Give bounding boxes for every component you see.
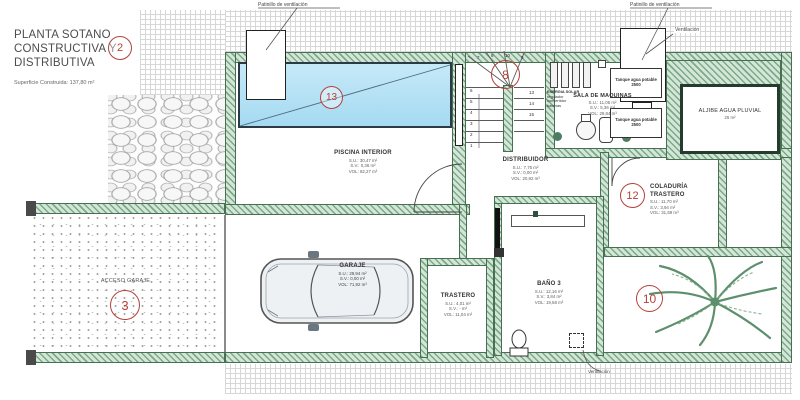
step-4: 4 [470,110,473,115]
badge-coladuria: 12 [620,183,645,208]
ventilacion-label-top: Ventilación [674,27,700,33]
step-10: 10 [505,53,510,58]
patinillo-label-right: Patinillo de ventilación [630,2,679,8]
step-7: 7 [477,55,480,60]
step-8: 8 [491,53,494,58]
room-label-aljibe: ALJIBE AGUA PLUVIAL 25 m² [696,108,764,120]
room-label-piscina: PISCINA INTERIOR S.U.: 30,47 m² S.V.: 0,… [318,150,408,174]
room-label-distribuidor: DISTRIBUIDOR S.U.: 7,75 m² S.V.: 0,00 m²… [488,157,563,181]
badge-piscina-number: 13 [326,92,337,103]
step-6: 6 [470,88,473,93]
badge-acceso: 3 [110,290,140,320]
step-1: 1 [470,143,473,148]
step-14: 14 [529,101,534,106]
badge-stairs-number: 8 [502,68,509,82]
step-3: 3 [470,121,473,126]
step-9: 9 [521,55,524,60]
step-5: 5 [470,99,473,104]
room-label-coladuria: COLADURÍA TRASTERO S.U.: 11,70 m² S.V.: … [650,184,710,216]
ventilacion-label-bottom: Ventilación [588,369,610,374]
floor-plan: Tanque agua potable 2500 Tanque agua pot… [0,0,800,400]
energia-solar-label: ENERGIA SOLAR regulador convertidor bate… [547,90,587,109]
badge-piscina: 13 [320,86,343,109]
badge-patio: 10 [636,285,663,312]
step-13: 13 [529,90,534,95]
badge-coladuria-number: 12 [626,190,638,202]
step-2: 2 [470,132,473,137]
energia-line-3: baterías [547,104,587,109]
room-label-bano3: BAÑO 3 S.U.: 12,16 m² S.V.: 3,84 m² VOL:… [519,281,579,305]
badge-patio-number: 10 [643,292,656,306]
room-label-trastero: TRASTERO S.U.: 4,01 m² S.V.: - m² VOL: 1… [428,293,488,317]
plan-number: 2 [117,42,123,54]
patinillo-label-left: Patinillo de ventilación [258,2,307,8]
room-label-acceso-garaje: ACCESO GARAJE [88,278,163,285]
built-area-note: Superficie Construida: 137,80 m² [14,80,94,86]
step-15: 15 [529,112,534,117]
plan-number-badge: 2 [108,36,132,60]
badge-stairs: 8 [491,60,520,89]
badge-acceso-number: 3 [121,298,128,313]
room-label-garaje: GARAJE S.U.: 29,94 m² S.V.: 0,00 m² VOL:… [320,263,385,287]
